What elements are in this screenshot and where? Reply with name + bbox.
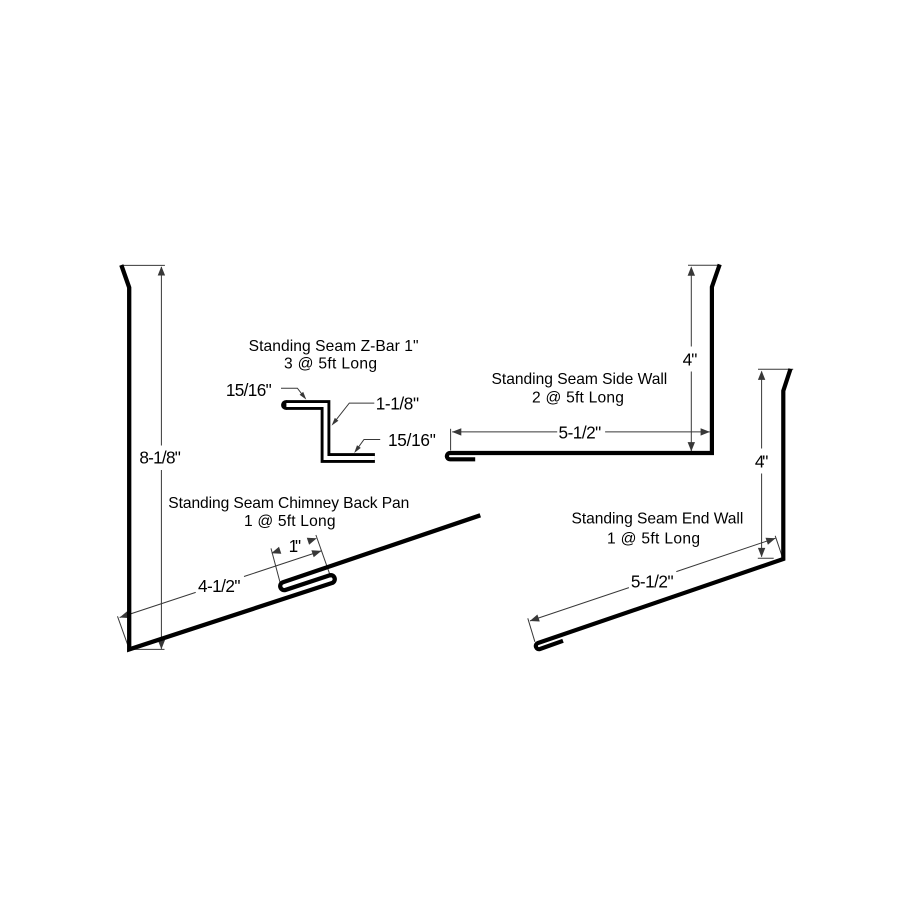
svg-text:3 @ 5ft Long: 3 @ 5ft Long bbox=[284, 356, 377, 373]
svg-text:Standing Seam End Wall: Standing Seam End Wall bbox=[572, 511, 744, 528]
svg-text:1 @ 5ft Long: 1 @ 5ft Long bbox=[244, 513, 336, 530]
svg-text:4": 4" bbox=[755, 451, 769, 471]
svg-text:8-1/8": 8-1/8" bbox=[139, 448, 181, 468]
svg-text:5-1/2": 5-1/2" bbox=[631, 572, 674, 592]
svg-text:Standing Seam Z-Bar 1": Standing Seam Z-Bar 1" bbox=[249, 338, 419, 355]
svg-text:4-1/2": 4-1/2" bbox=[198, 576, 241, 596]
svg-text:1": 1" bbox=[289, 536, 302, 556]
svg-text:Standing Seam Side Wall: Standing Seam Side Wall bbox=[492, 371, 668, 388]
svg-text:15/16": 15/16" bbox=[226, 380, 272, 400]
svg-text:4": 4" bbox=[683, 349, 698, 369]
svg-text:Standing Seam Chimney Back Pan: Standing Seam Chimney Back Pan bbox=[168, 495, 409, 512]
svg-text:1 @ 5ft Long: 1 @ 5ft Long bbox=[607, 531, 700, 548]
svg-text:2 @ 5ft Long: 2 @ 5ft Long bbox=[532, 390, 624, 407]
svg-text:15/16": 15/16" bbox=[388, 430, 436, 450]
svg-text:5-1/2": 5-1/2" bbox=[559, 422, 602, 442]
svg-text:1-1/8": 1-1/8" bbox=[376, 394, 419, 414]
